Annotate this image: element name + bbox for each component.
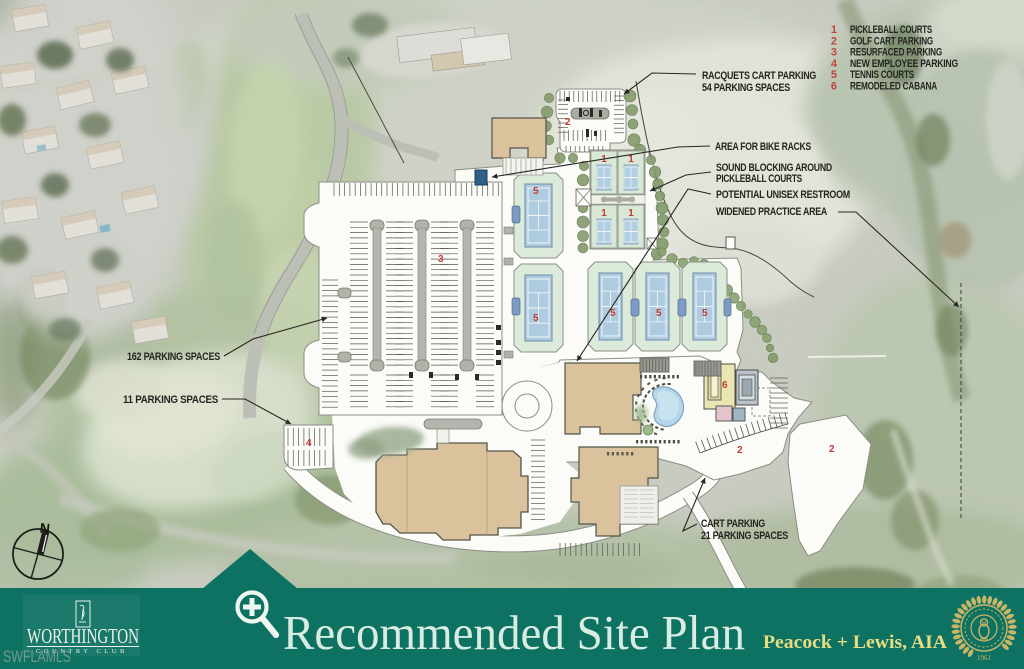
svg-text:1: 1: [831, 24, 837, 36]
svg-text:5: 5: [656, 308, 662, 319]
svg-text:21 PARKING SPACES: 21 PARKING SPACES: [701, 530, 788, 542]
svg-text:RESURFACED PARKING: RESURFACED PARKING: [850, 47, 942, 59]
svg-text:5: 5: [533, 313, 539, 324]
svg-text:4: 4: [306, 438, 312, 449]
svg-text:2: 2: [829, 444, 835, 455]
svg-text:5: 5: [702, 308, 708, 319]
svg-text:Peacock + Lewis, AIA: Peacock + Lewis, AIA: [763, 632, 947, 653]
svg-text:REMODELED CABANA: REMODELED CABANA: [850, 81, 938, 93]
svg-text:1: 1: [628, 208, 634, 219]
svg-text:PICKLEBALL COURTS: PICKLEBALL COURTS: [850, 24, 932, 36]
svg-text:POTENTIAL UNISEX RESTROOM: POTENTIAL UNISEX RESTROOM: [716, 189, 850, 201]
svg-text:6: 6: [722, 380, 728, 391]
svg-text:GOLF CART PARKING: GOLF CART PARKING: [850, 35, 933, 47]
svg-text:6: 6: [831, 81, 837, 93]
svg-text:5: 5: [533, 186, 539, 197]
svg-text:1961: 1961: [977, 654, 992, 662]
svg-text:4: 4: [831, 58, 838, 70]
svg-text:5: 5: [610, 308, 616, 319]
svg-text:3: 3: [438, 254, 444, 265]
svg-text:AREA FOR BIKE RACKS: AREA FOR BIKE RACKS: [715, 141, 811, 153]
svg-text:1: 1: [628, 154, 634, 165]
svg-text:2: 2: [737, 445, 743, 456]
svg-text:RACQUETS CART PARKING: RACQUETS CART PARKING: [702, 70, 816, 82]
svg-text:WIDENED PRACTICE AREA: WIDENED PRACTICE AREA: [716, 206, 828, 218]
svg-text:WORTHINGTON: WORTHINGTON: [27, 624, 139, 648]
svg-text:54 PARKING SPACES: 54 PARKING SPACES: [702, 82, 790, 94]
svg-text:CART PARKING: CART PARKING: [701, 518, 765, 530]
svg-text:PICKLEBALL COURTS: PICKLEBALL COURTS: [716, 173, 802, 185]
svg-text:N: N: [39, 520, 51, 537]
svg-text:162 PARKING SPACES: 162 PARKING SPACES: [127, 351, 220, 363]
svg-text:Recommended Site Plan: Recommended Site Plan: [283, 605, 745, 660]
svg-text:2: 2: [565, 117, 571, 128]
svg-text:TENNIS COURTS: TENNIS COURTS: [850, 69, 914, 81]
svg-text:2: 2: [831, 35, 837, 47]
svg-text:3: 3: [831, 47, 837, 59]
svg-text:SWFLAMLS: SWFLAMLS: [3, 647, 71, 666]
svg-text:NEW EMPLOYEE PARKING: NEW EMPLOYEE PARKING: [850, 58, 958, 70]
svg-text:5: 5: [831, 69, 837, 81]
svg-text:11 PARKING SPACES: 11 PARKING SPACES: [123, 394, 218, 406]
svg-text:1: 1: [601, 208, 607, 219]
